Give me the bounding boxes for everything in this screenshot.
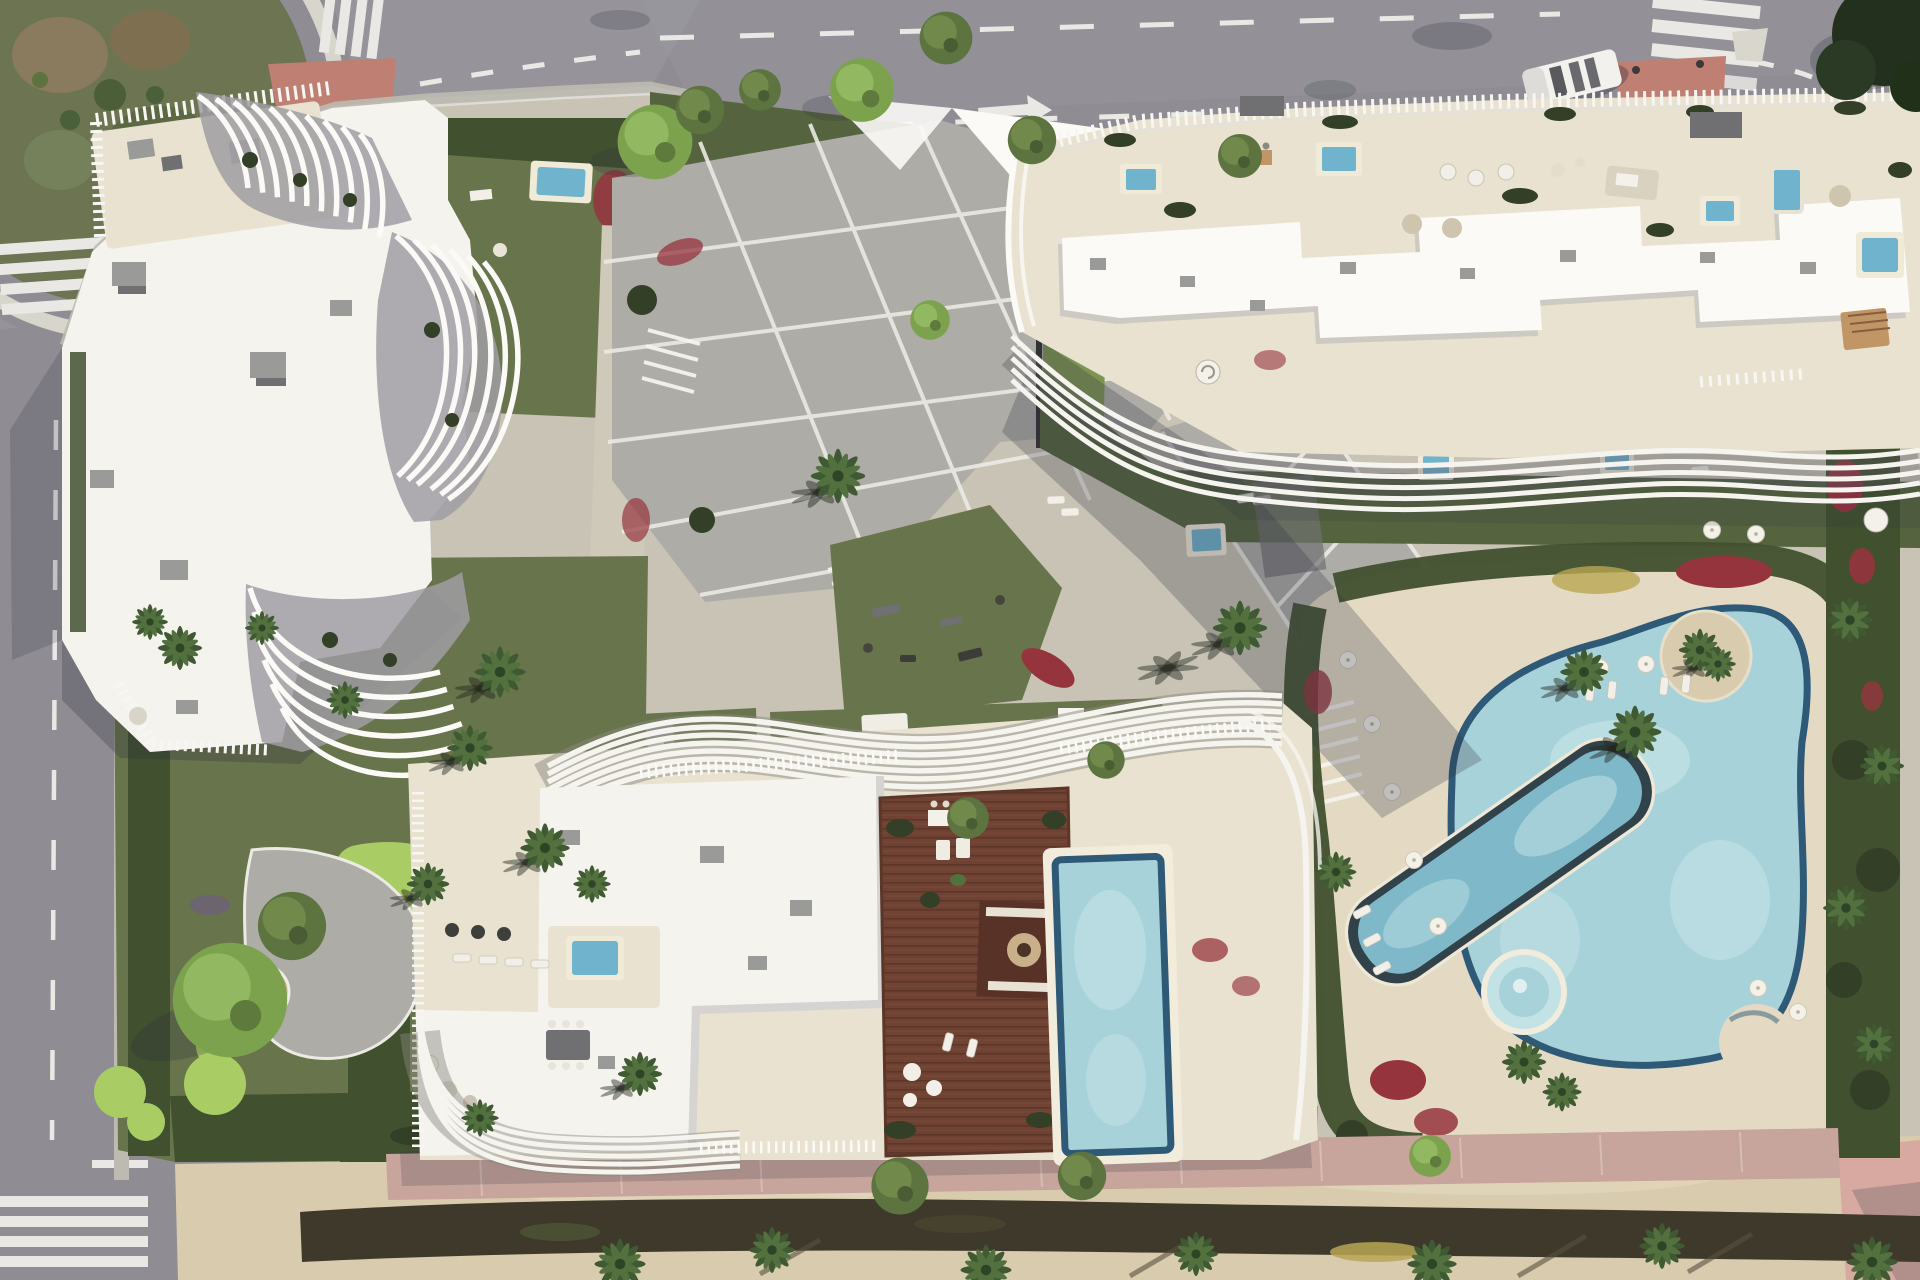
- rooftop-wood-deck: [880, 788, 1074, 1156]
- aerial-render-viewport: [0, 0, 1920, 1280]
- building-c: [400, 695, 1320, 1186]
- roof-pergola: [1690, 112, 1742, 138]
- pool-amenity-area: [1300, 522, 1858, 1161]
- rooftop-infinity-pool: [1042, 844, 1183, 1166]
- pool-beach-tongue: [1719, 1004, 1795, 1080]
- roof-spa: [1772, 168, 1802, 212]
- c-plunge-pool: [572, 941, 618, 975]
- c-dining-table: [546, 1030, 590, 1060]
- roof-plunge-pool: [1126, 169, 1156, 190]
- traffic-island: [1732, 28, 1768, 62]
- garden-plunge-pool: [536, 167, 585, 197]
- building-a-west-hedge: [70, 352, 86, 632]
- large-tree: [173, 943, 287, 1057]
- spiral-stair: [1196, 360, 1220, 384]
